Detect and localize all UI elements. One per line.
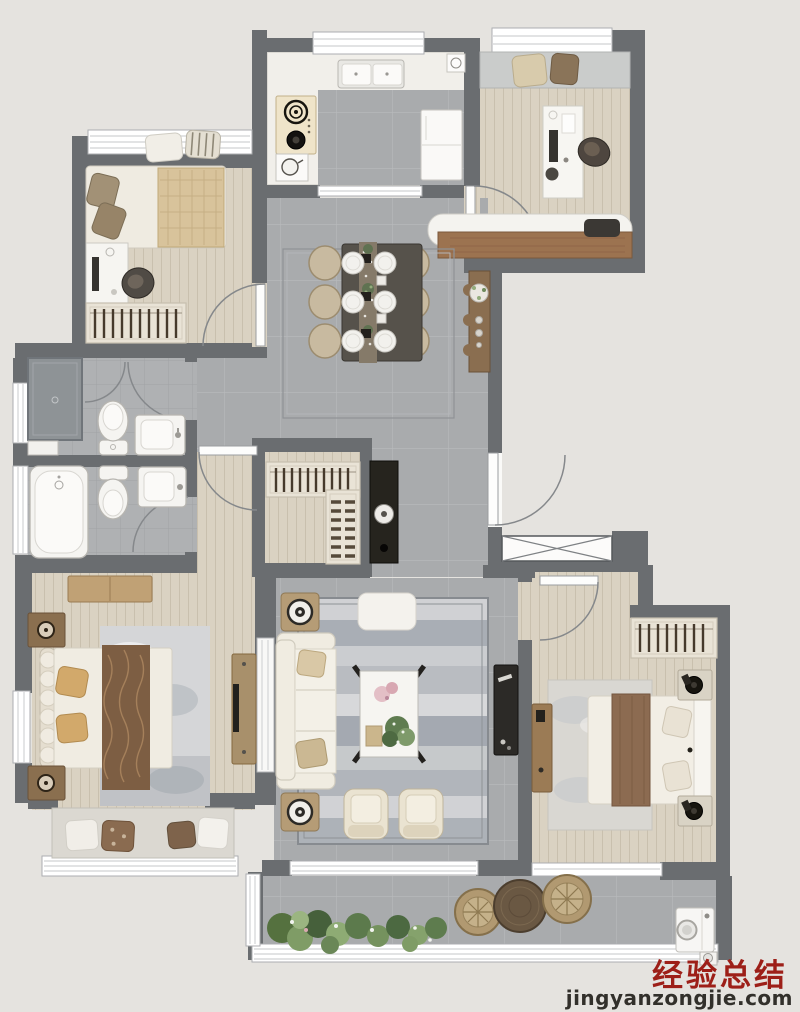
vanity-sink — [135, 415, 185, 455]
bedroom-right-balcony-window — [532, 863, 662, 876]
tv — [233, 684, 239, 732]
tv-cabinet — [532, 704, 552, 792]
kitchen-sink — [338, 60, 404, 88]
sill-pillow — [197, 817, 230, 850]
bed-pillow — [662, 760, 692, 792]
living-balcony-slider — [290, 861, 478, 875]
armchair — [344, 789, 388, 839]
sill-pillow — [65, 819, 99, 851]
shower — [28, 358, 82, 440]
kitchen-sliding-door — [318, 186, 422, 196]
headboard — [694, 692, 711, 808]
coffee-table — [354, 666, 424, 762]
sill-pillow — [167, 821, 197, 850]
kettle-station — [276, 154, 308, 181]
bedroom-desk — [86, 243, 128, 303]
pillow — [550, 53, 580, 85]
bathtub — [30, 466, 88, 558]
tv-console — [494, 665, 518, 755]
bed-pillow — [56, 713, 89, 744]
living-room — [276, 593, 518, 844]
side-table — [281, 793, 319, 831]
master-bay-sill — [52, 808, 234, 858]
sofa-pillow — [296, 649, 326, 678]
bath-shelf — [28, 441, 58, 455]
nightstand — [28, 613, 65, 647]
toilet — [98, 401, 128, 455]
water-heater — [447, 54, 465, 72]
daybed-cushion — [584, 219, 620, 237]
wardrobe-rack — [631, 618, 717, 658]
centerpiece-plant — [363, 244, 373, 254]
nightstand — [678, 670, 712, 700]
bed — [588, 692, 711, 808]
master-bay-window — [42, 856, 238, 876]
wicker-chair — [543, 875, 591, 923]
sill-pillow-floral — [101, 820, 135, 852]
hall-cabinet — [370, 461, 398, 563]
floor-plan-svg: 经验总结 jingyanzongjie.com — [0, 0, 800, 1012]
cloak-rack-side — [326, 490, 360, 564]
toilet — [98, 466, 128, 519]
nightstand — [678, 796, 712, 826]
bed — [86, 166, 226, 248]
bath-windows — [13, 383, 28, 554]
sill-pillow — [145, 132, 183, 162]
living-wall-glass — [257, 638, 274, 772]
vanity-sink — [138, 467, 186, 507]
master-tv-bench — [232, 654, 256, 764]
ottoman — [358, 593, 416, 630]
pillow — [512, 53, 548, 87]
kitchen-window — [313, 32, 424, 54]
floor-plan-image: 经验总结 jingyanzongjie.com — [0, 0, 800, 1012]
sofa-pillow — [295, 738, 328, 769]
refrigerator — [421, 110, 462, 180]
bed-pillow — [661, 706, 692, 739]
sill-pillow-striped — [185, 130, 221, 159]
wardrobe-rack — [86, 303, 186, 343]
washing-machine — [676, 908, 714, 952]
watermark-domain: jingyanzongjie.com — [565, 986, 793, 1010]
armchair — [399, 789, 443, 839]
shaft-box — [502, 536, 612, 561]
stove — [276, 96, 316, 154]
nightstand — [28, 766, 65, 800]
study-window — [492, 28, 612, 52]
balcony-table — [494, 880, 546, 932]
side-table — [281, 593, 319, 631]
sofa — [276, 633, 336, 789]
study-desk — [543, 106, 583, 198]
master-left-window — [13, 691, 30, 763]
dining-table — [342, 242, 422, 363]
daybed — [428, 214, 632, 258]
bed-pillow — [55, 666, 89, 699]
